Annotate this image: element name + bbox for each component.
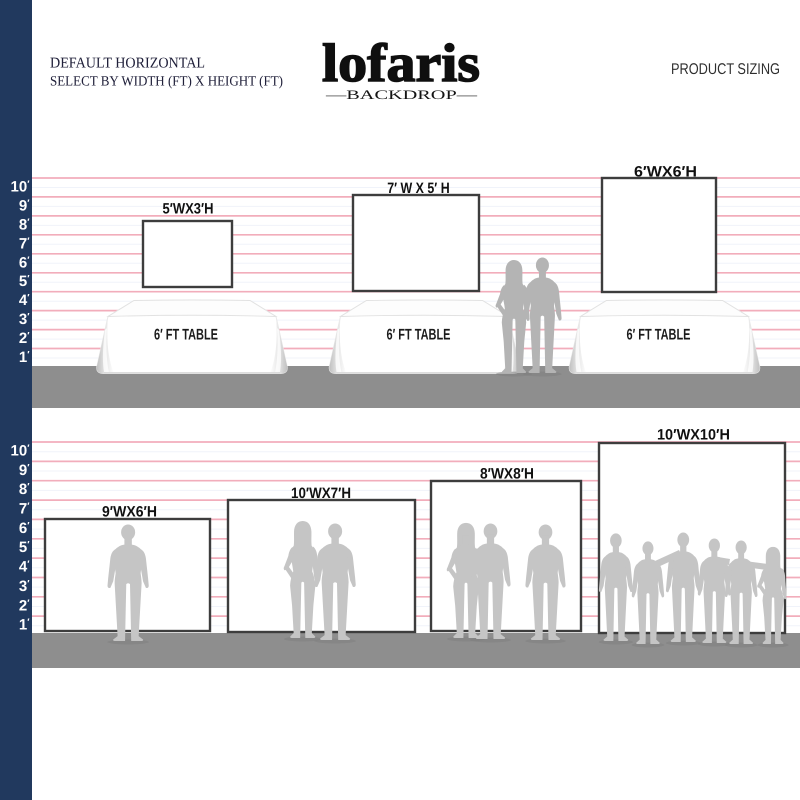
svg-text:10′WX10′H: 10′WX10′H: [657, 427, 730, 444]
svg-text:PRODUCT SIZING: PRODUCT SIZING: [671, 61, 780, 78]
svg-text:lofaris: lofaris: [322, 33, 480, 93]
svg-text:5′WX3′H: 5′WX3′H: [163, 201, 214, 218]
svg-text:6′ FT TABLE: 6′ FT TABLE: [627, 327, 691, 344]
svg-text:DEFAULT HORIZONTAL: DEFAULT HORIZONTAL: [50, 56, 205, 72]
svg-text:6′ FT TABLE: 6′ FT TABLE: [154, 327, 218, 344]
svg-text:—BACKDROP—: —BACKDROP—: [324, 87, 478, 102]
svg-text:SELECT BY WIDTH (FT) X HEIGHT: SELECT BY WIDTH (FT) X HEIGHT (FT): [50, 74, 283, 90]
svg-text:6′ FT TABLE: 6′ FT TABLE: [387, 327, 451, 344]
